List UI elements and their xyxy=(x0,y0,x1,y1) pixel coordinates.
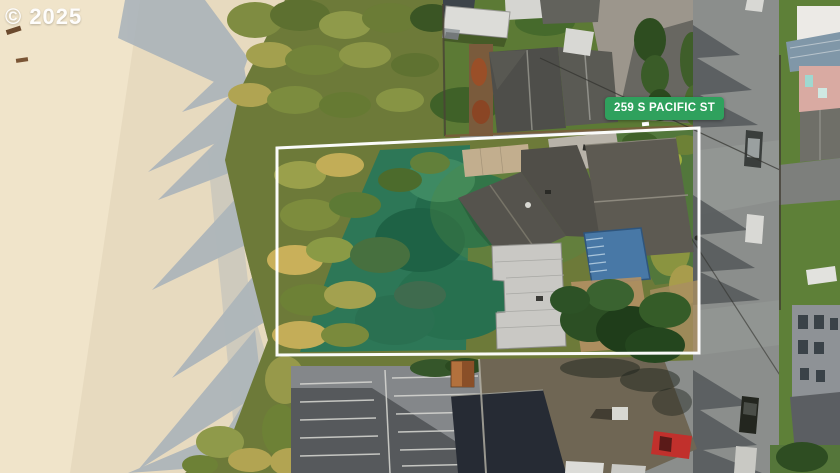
white-van xyxy=(563,28,594,56)
right-houses xyxy=(770,0,840,473)
tree xyxy=(776,442,828,472)
rooftop-ac-unit xyxy=(612,407,628,420)
car-parked-white xyxy=(745,214,764,244)
skylight xyxy=(525,202,531,208)
aerial-photo: © 2025 259 S PACIFIC ST xyxy=(0,0,840,473)
badge-pointer-tick xyxy=(642,122,649,127)
blue-deck xyxy=(584,228,650,284)
scene xyxy=(0,0,840,473)
neighbor-building xyxy=(505,0,545,20)
address-badge: 259 S PACIFIC ST xyxy=(605,97,724,120)
car-white-bottom-1 xyxy=(565,461,604,473)
car-parked-silver xyxy=(734,446,757,473)
right-driveway xyxy=(779,158,840,205)
neighbor-roof-top xyxy=(540,0,600,24)
bottom-block xyxy=(291,357,697,473)
copyright-watermark: © 2025 xyxy=(5,4,82,30)
car-white-top xyxy=(745,0,764,12)
